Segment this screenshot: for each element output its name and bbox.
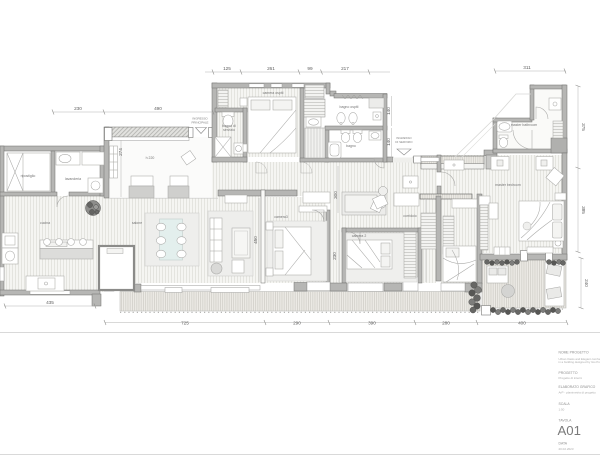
svg-text:salone: salone — [132, 221, 142, 225]
svg-text:125: 125 — [223, 66, 231, 71]
svg-text:311: 311 — [523, 65, 531, 70]
svg-text:cucina: cucina — [40, 221, 50, 225]
svg-text:camera3: camera3 — [274, 215, 288, 219]
svg-text:274: 274 — [118, 148, 123, 156]
svg-text:camera 2: camera 2 — [352, 234, 367, 238]
svg-text:140: 140 — [386, 138, 391, 146]
svg-text:ripostiglio: ripostiglio — [21, 174, 36, 178]
svg-text:lavanderia: lavanderia — [65, 177, 81, 181]
svg-text:240: 240 — [584, 279, 589, 287]
svg-text:230: 230 — [74, 106, 82, 111]
svg-text:bagno ospiti: bagno ospiti — [340, 105, 359, 109]
svg-text:Progetto di interni: Progetto di interni — [559, 376, 583, 380]
svg-text:master bedroom: master bedroom — [495, 183, 521, 187]
svg-text:20.02.2023: 20.02.2023 — [559, 447, 574, 451]
svg-text:140: 140 — [386, 107, 391, 115]
svg-text:390: 390 — [368, 320, 376, 325]
svg-text:375: 375 — [581, 123, 586, 131]
svg-text:bagno: bagno — [346, 144, 356, 148]
svg-text:400: 400 — [518, 320, 526, 325]
svg-text:99: 99 — [307, 66, 313, 71]
svg-text:DI SERVIZIO: DI SERVIZIO — [395, 140, 413, 144]
svg-text:ELABORATO GRAFICO: ELABORATO GRAFICO — [559, 385, 596, 389]
svg-text:230: 230 — [332, 252, 337, 260]
svg-text:1:50: 1:50 — [559, 407, 565, 411]
svg-text:h 220: h 220 — [146, 156, 155, 160]
svg-text:SCALA: SCALA — [559, 402, 571, 406]
svg-text:camera ospiti: camera ospiti — [263, 91, 284, 95]
svg-text:A01: A01 — [558, 423, 581, 438]
svg-text:435: 435 — [46, 300, 54, 305]
svg-text:master bathroom: master bathroom — [511, 123, 538, 127]
svg-text:450: 450 — [253, 236, 258, 244]
svg-text:490: 490 — [154, 106, 162, 111]
svg-text:in a building designed by Gio: in a building designed by Gio Ponti — [559, 360, 600, 364]
svg-text:385: 385 — [581, 206, 586, 214]
svg-text:261: 261 — [267, 66, 275, 71]
svg-text:PRINCIPALE: PRINCIPALE — [192, 121, 209, 125]
svg-text:DATA: DATA — [559, 442, 568, 446]
svg-text:300: 300 — [333, 191, 338, 199]
svg-text:PROGETTO: PROGETTO — [559, 371, 578, 375]
svg-text:725: 725 — [181, 320, 189, 325]
svg-text:servizio: servizio — [223, 128, 235, 132]
svg-text:290: 290 — [293, 320, 301, 325]
svg-text:217: 217 — [341, 66, 349, 71]
svg-text:ArP - planimetria di progetto: ArP - planimetria di progetto — [559, 391, 597, 395]
svg-text:280: 280 — [442, 320, 450, 325]
svg-text:corridoio: corridoio — [403, 214, 416, 218]
svg-text:NOME PROGETTO: NOME PROGETTO — [559, 351, 589, 355]
